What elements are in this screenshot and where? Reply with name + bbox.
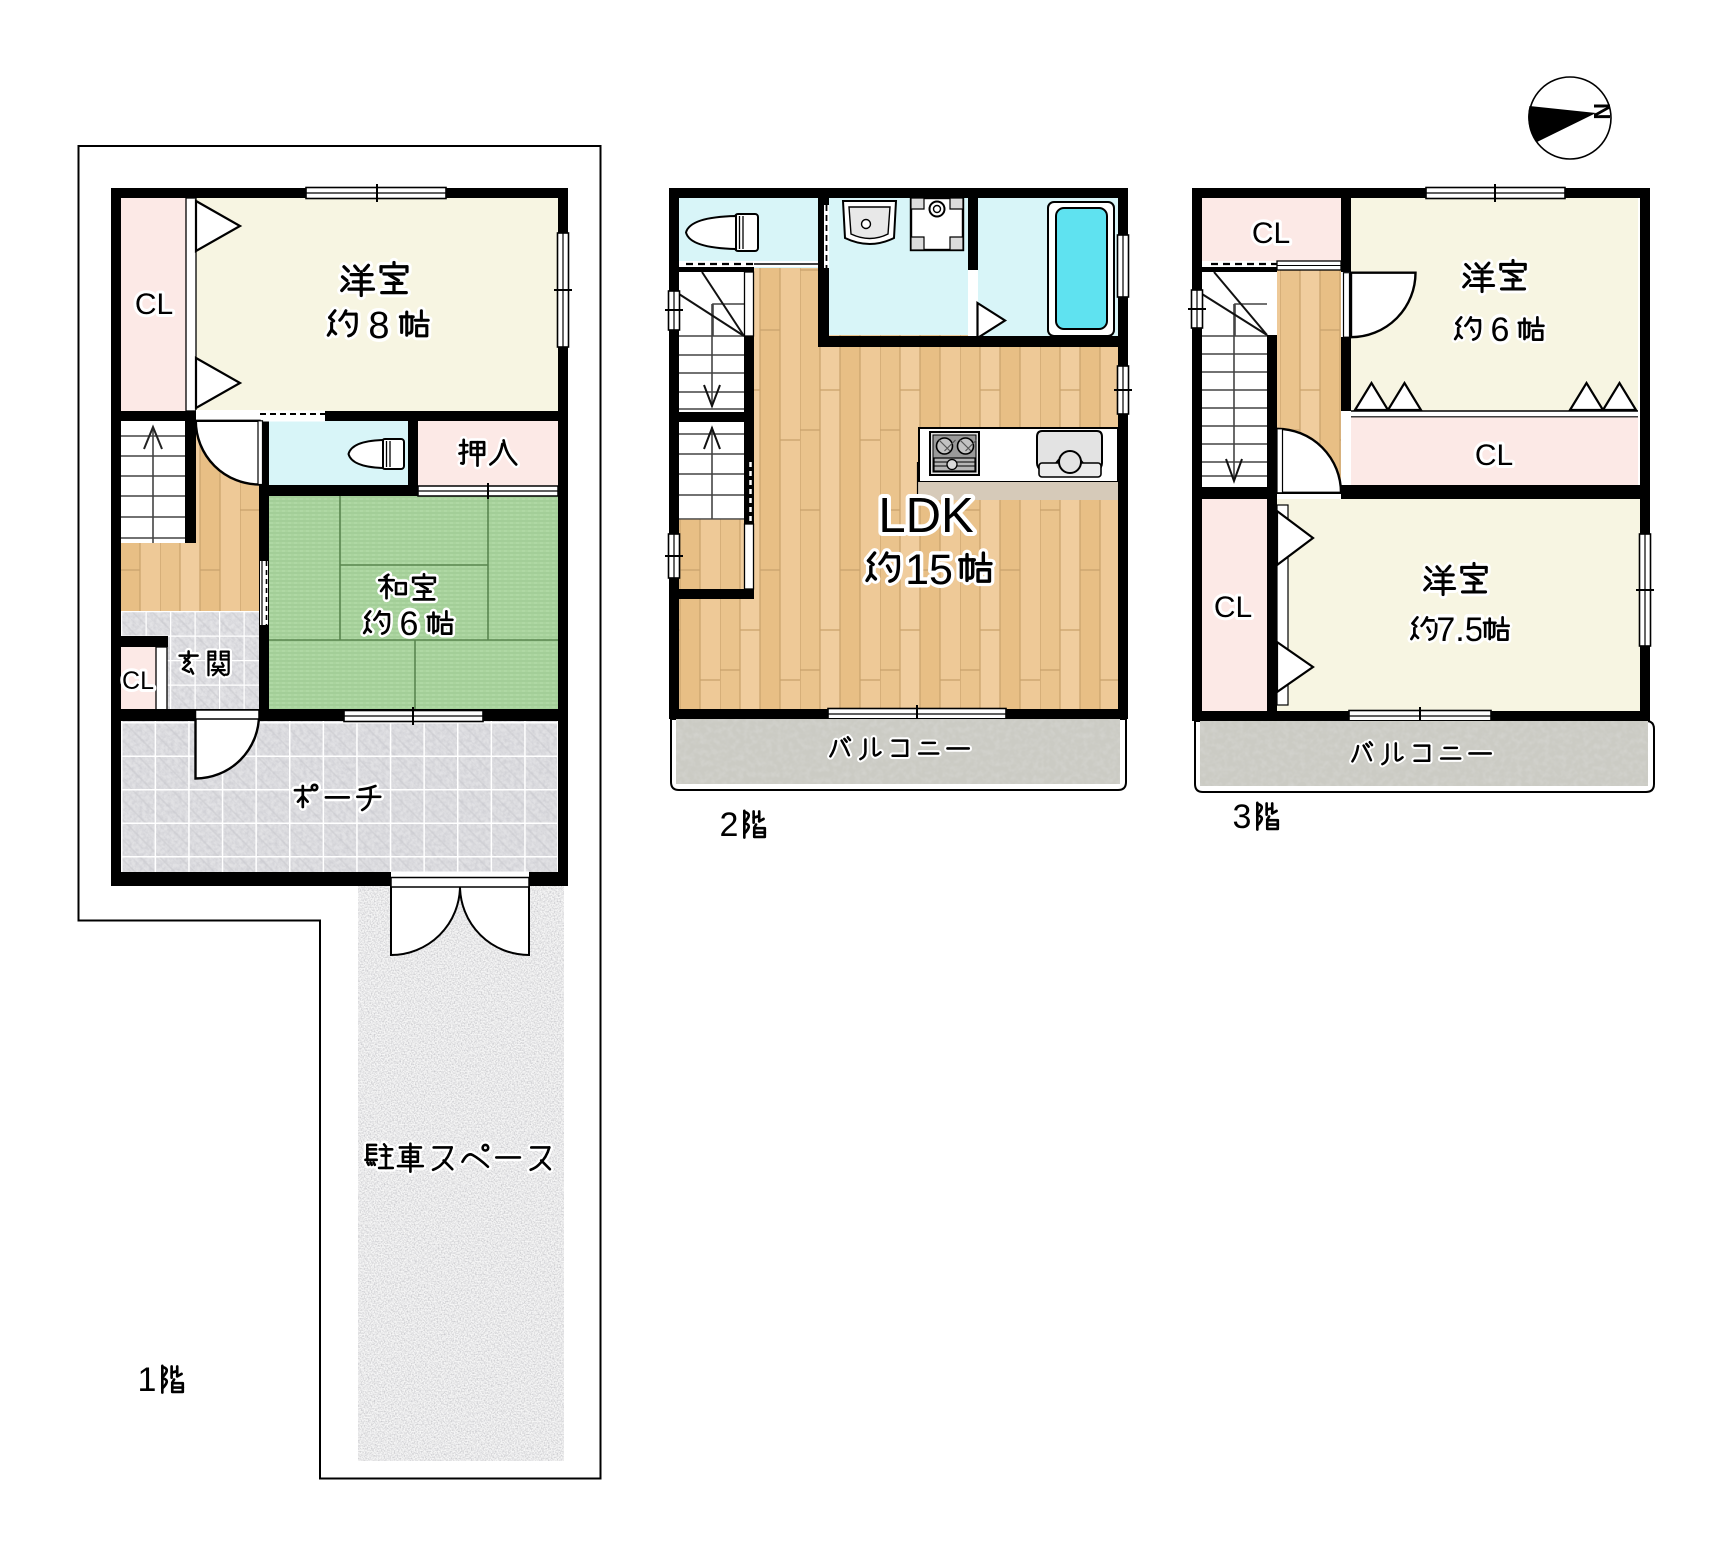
svg-text:3: 3 xyxy=(1233,798,1252,836)
svg-text:8: 8 xyxy=(368,305,389,347)
svg-text:15: 15 xyxy=(905,546,953,594)
svg-text:2: 2 xyxy=(720,806,739,844)
svg-text:N: N xyxy=(1589,103,1615,120)
svg-text:CL: CL xyxy=(1214,591,1252,624)
svg-text:CL: CL xyxy=(135,288,173,321)
svg-text:7.5: 7.5 xyxy=(1436,611,1483,649)
svg-text:CL: CL xyxy=(122,667,154,695)
svg-text:6: 6 xyxy=(400,605,419,643)
svg-text:6: 6 xyxy=(1491,311,1510,349)
svg-text:CL: CL xyxy=(1475,439,1513,472)
svg-text:LDK: LDK xyxy=(878,489,974,543)
svg-text:1: 1 xyxy=(138,1361,157,1399)
svg-text:CL: CL xyxy=(1252,217,1290,250)
